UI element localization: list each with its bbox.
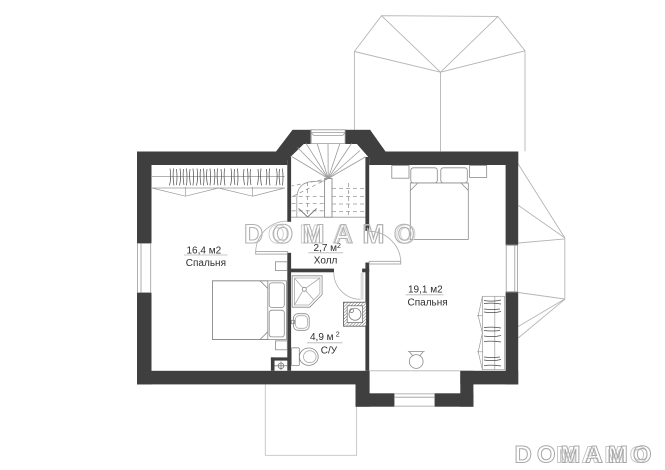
svg-text:4,9 м: 4,9 м <box>310 332 334 343</box>
svg-text:Спальня: Спальня <box>186 258 226 269</box>
svg-text:2: 2 <box>336 332 340 339</box>
svg-text:С/У: С/У <box>321 345 338 356</box>
svg-text:Спальня: Спальня <box>408 297 448 308</box>
svg-text:19,1 м2: 19,1 м2 <box>408 285 443 296</box>
svg-text:Холл: Холл <box>314 255 338 266</box>
